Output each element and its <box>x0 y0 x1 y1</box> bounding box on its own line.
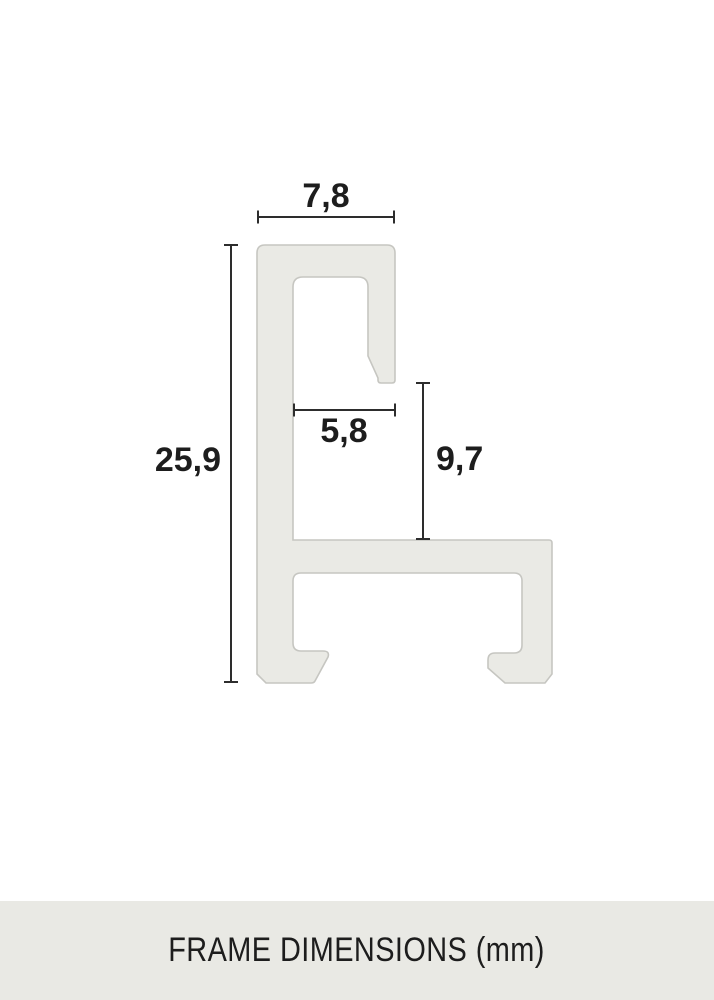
dimension-inner-top-width: 5,8 <box>294 404 395 451</box>
footer-bar: FRAME DIMENSIONS (mm) <box>0 901 714 1000</box>
dimension-value: 5,8 <box>320 412 367 450</box>
dimension-outer-top-width: 7,8 <box>258 177 394 224</box>
diagram-area: 7,8 25,9 5,8 9,7 FRAME DIMENSIONS (mm) <box>0 0 714 1000</box>
dimension-value: 9,7 <box>436 440 483 478</box>
dimension-overall-height: 25,9 <box>155 245 238 682</box>
footer-caption: FRAME DIMENSIONS (mm) <box>169 931 546 970</box>
dimension-value: 7,8 <box>302 177 349 215</box>
dimension-value: 25,9 <box>155 441 221 479</box>
dimension-rabbet-height: 9,7 <box>416 383 483 539</box>
frame-profile-shape <box>257 245 552 683</box>
profile-diagram-svg: 7,8 25,9 5,8 9,7 <box>0 0 714 1000</box>
